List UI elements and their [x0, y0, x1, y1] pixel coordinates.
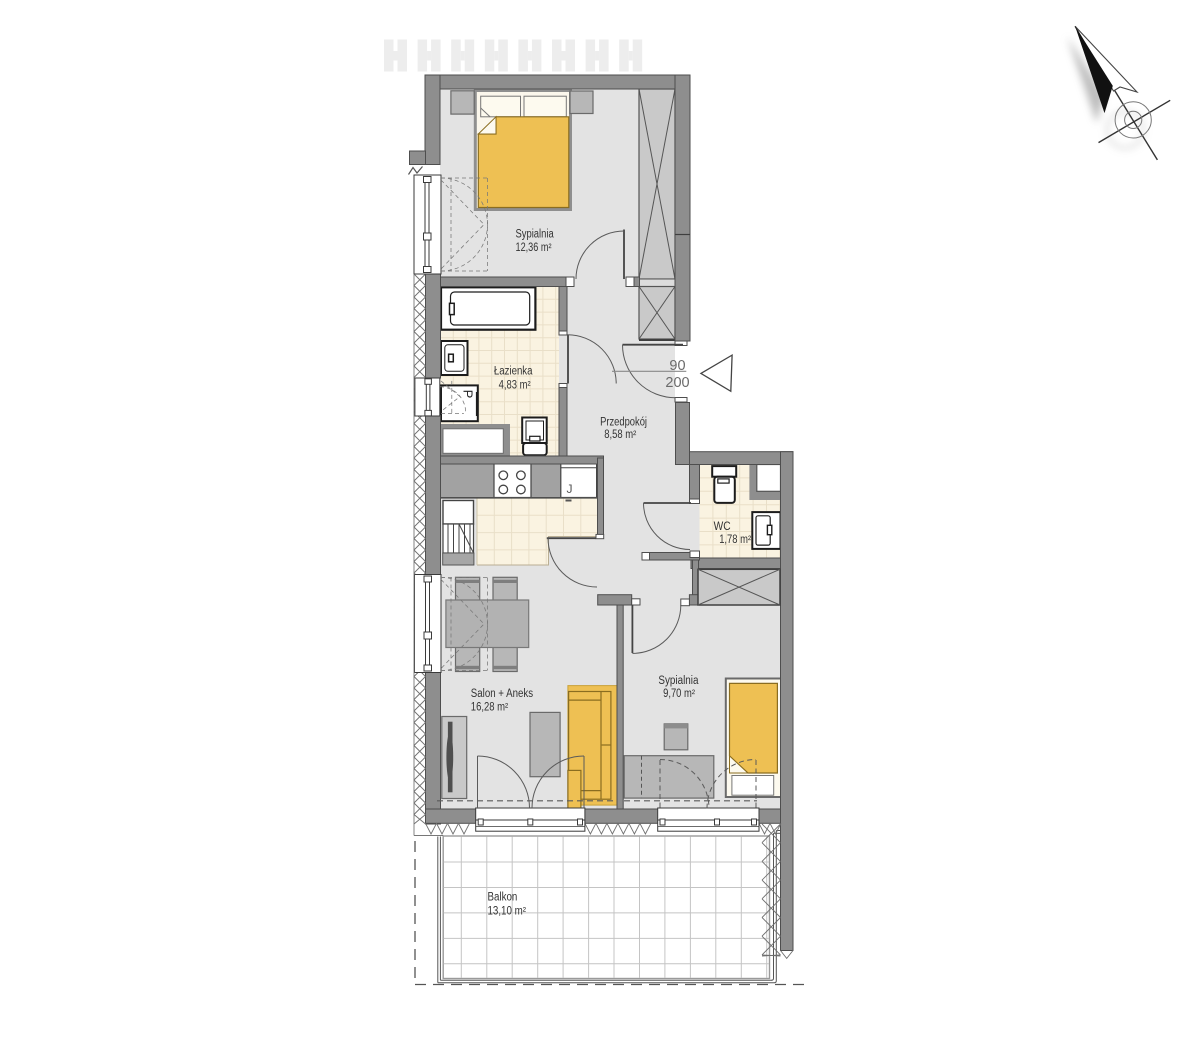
svg-text:P: P — [460, 390, 475, 399]
svg-text:16,28 m²: 16,28 m² — [471, 701, 509, 713]
svg-text:Balkon: Balkon — [488, 892, 518, 904]
svg-text:1,78 m²: 1,78 m² — [719, 534, 751, 546]
svg-text:Przedpokój: Przedpokój — [600, 416, 647, 428]
svg-text:9,70 m²: 9,70 m² — [663, 688, 695, 700]
svg-text:Sypialnia: Sypialnia — [516, 229, 555, 241]
svg-text:8,58 m²: 8,58 m² — [604, 429, 636, 441]
svg-text:Łazienka: Łazienka — [494, 365, 533, 377]
svg-text:Sypialnia: Sypialnia — [658, 675, 699, 687]
svg-text:200: 200 — [665, 375, 689, 391]
svg-text:13,10 m²: 13,10 m² — [488, 906, 527, 918]
svg-text:12,36 m²: 12,36 m² — [516, 242, 552, 254]
svg-text:WC: WC — [714, 521, 731, 533]
svg-text:Salon + Aneks: Salon + Aneks — [471, 688, 533, 700]
svg-text:J: J — [567, 482, 573, 496]
svg-text:4,83 m²: 4,83 m² — [499, 379, 531, 391]
